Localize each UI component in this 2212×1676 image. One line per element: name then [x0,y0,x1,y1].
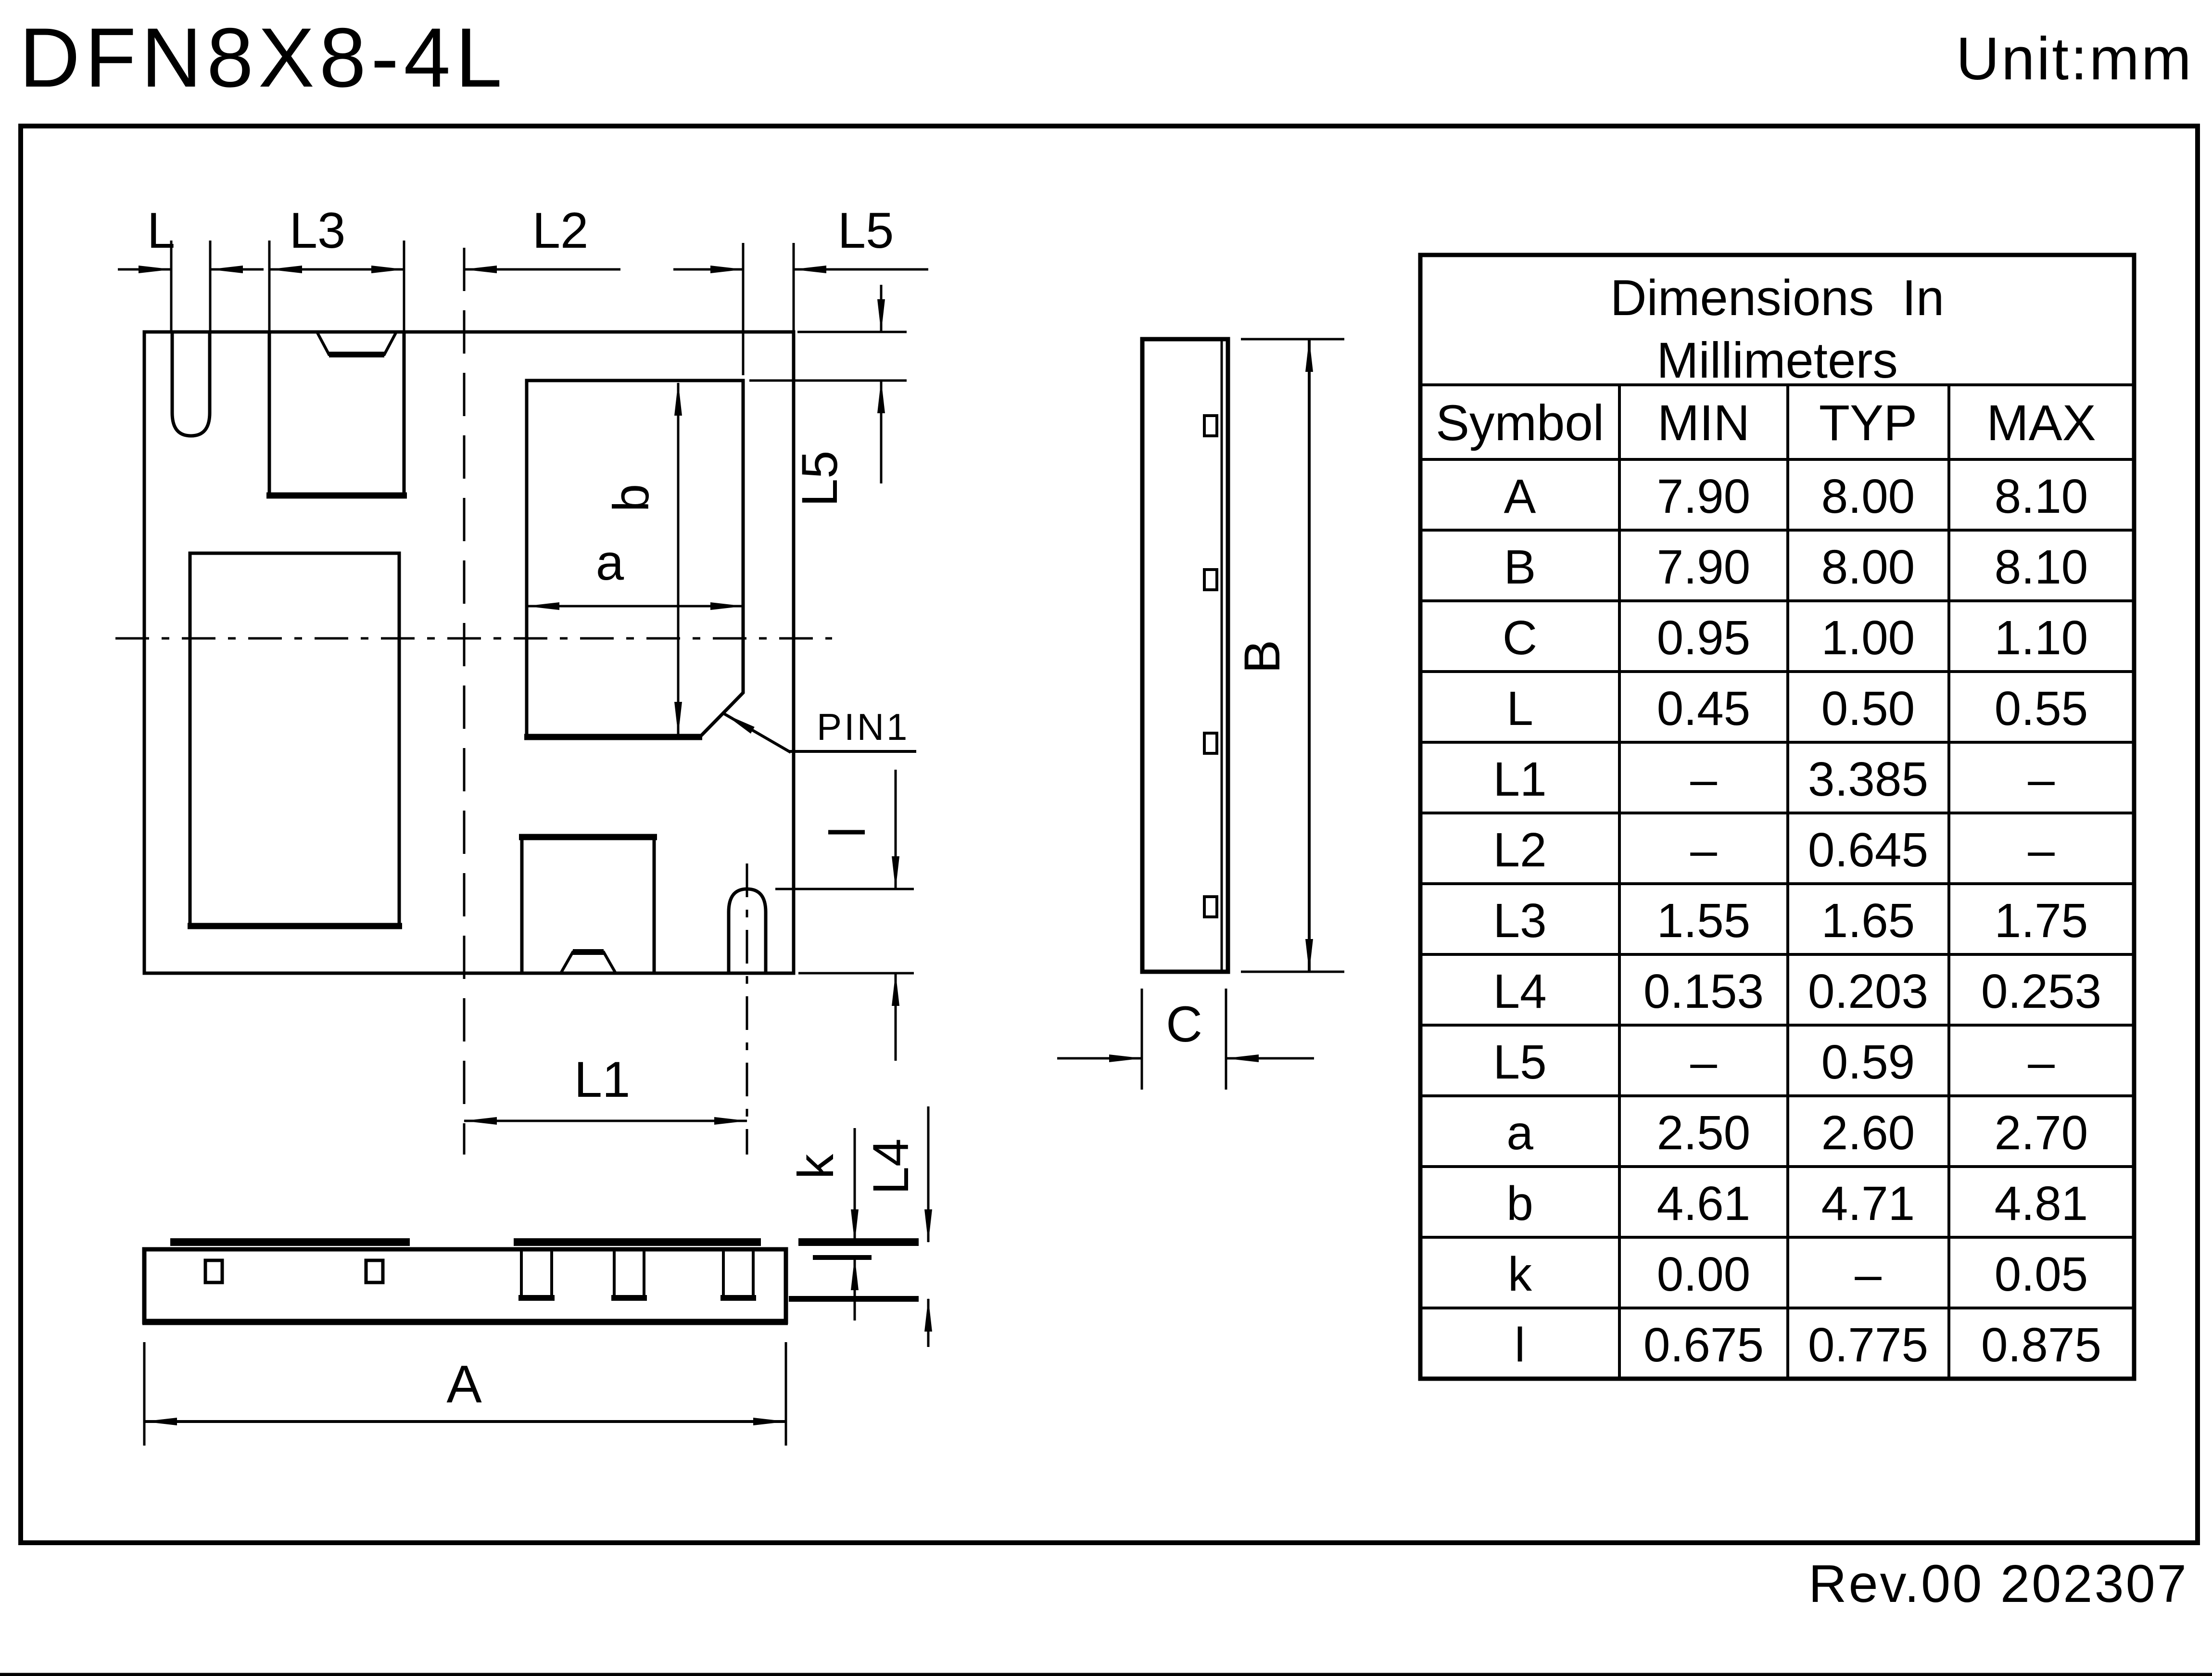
cell-max: 8.10 [1995,470,2088,523]
cell-symbol: L1 [1493,752,1546,806]
tab1-sides [521,1249,552,1298]
unit-label: Unit:mm [1956,25,2193,92]
profile-tabs [518,1249,756,1298]
dim-L3-label: L3 [290,203,346,259]
side-lead-1 [1204,416,1217,436]
cell-typ: 4.71 [1821,1177,1915,1231]
cell-min: 0.45 [1657,682,1751,736]
tab3-sides [723,1249,753,1298]
dim-B-label: B [1234,640,1290,673]
cell-typ: 0.203 [1808,965,1928,1018]
col-header-typ: TYP [1819,395,1917,451]
dim-L5-right-label: L5 [792,451,848,507]
table-row: a 2.50 2.60 2.70 [1506,1106,2088,1160]
notched-lead-top [266,332,407,495]
dim-l-right: l [775,770,914,1061]
cell-max: 2.70 [1995,1106,2088,1160]
cell-min: 0.153 [1643,965,1764,1018]
package-body-outline [144,332,794,973]
table-row: L1 – 3.385 – [1493,752,2055,806]
table-row: A 7.90 8.00 8.10 [1504,470,2088,523]
table-row: L5 – 0.59 – [1493,1035,2055,1089]
dim-k: k [788,1128,855,1320]
table-row: L4 0.153 0.203 0.253 [1493,965,2101,1018]
col-header-max: MAX [1986,395,2096,451]
dim-a-label: a [596,534,624,591]
cell-typ: – [1855,1247,1882,1301]
profile-view: k L4 A [142,1106,928,1446]
cell-symbol: b [1506,1177,1533,1231]
cell-max: 4.81 [1995,1177,2088,1231]
cell-min: 0.675 [1643,1318,1764,1372]
cell-min: – [1690,1035,1717,1089]
dim-A: A [144,1342,786,1446]
col-header-symbol: Symbol [1436,395,1604,451]
cell-max: – [2028,1035,2055,1089]
cell-symbol: A [1504,470,1536,523]
dim-C-label: C [1166,996,1202,1053]
profile-via-2 [366,1260,383,1282]
cell-min: 0.00 [1657,1247,1751,1301]
revision-label: Rev.00 202307 [1808,1554,2188,1613]
cell-min: 0.95 [1657,611,1751,665]
table-row: L 0.45 0.50 0.55 [1506,682,2088,736]
exposed-pad-right [524,381,743,737]
table-row: L3 1.55 1.65 1.75 [1493,894,2088,948]
dim-b-label: b [603,484,659,512]
cell-min: 7.90 [1657,540,1751,594]
dim-L5-right: L5 [749,285,907,507]
dim-L1: L1 [464,1052,747,1121]
table-row: k 0.00 – 0.05 [1508,1247,2088,1301]
side-view: B C [1057,339,1344,1090]
dim-L4-label: L4 [863,1139,919,1195]
dim-L-label: L [147,203,175,259]
cell-symbol: L2 [1493,823,1546,877]
table-row: b 4.61 4.71 4.81 [1506,1177,2088,1231]
profile-body [144,1249,786,1322]
extension-lines-top [171,241,794,375]
cell-typ: 8.00 [1821,470,1915,523]
dim-k-label: k [788,1154,844,1179]
cell-typ: 0.50 [1821,682,1915,736]
cell-max: 0.05 [1995,1247,2088,1301]
lead-notch [317,333,396,355]
cell-typ: 8.00 [1821,540,1915,594]
cell-symbol: k [1508,1247,1532,1301]
cell-symbol: l [1515,1318,1525,1372]
top-view: PIN1 L L3 L2 L5 L5 [115,203,928,1155]
pin1-callout: PIN1 [724,706,916,752]
table-title-line2: Millimeters [1656,332,1898,389]
cell-max: 1.75 [1995,894,2088,948]
cell-typ: 3.385 [1808,752,1928,806]
side-lead-3 [1204,733,1217,753]
dim-L5-top-label: L5 [838,203,894,259]
dim-L4: L4 [863,1106,928,1347]
drawing-sheet: DFN8X8-4L Unit:mm Rev.00 202307 [0,0,2212,1676]
cell-max: 8.10 [1995,540,2088,594]
cell-min: 7.90 [1657,470,1751,523]
dim-C: C [1057,989,1314,1090]
cell-symbol: L [1506,682,1533,736]
cell-min: 4.61 [1657,1177,1751,1231]
cell-max: – [2028,823,2055,877]
side-lead-2 [1204,570,1217,590]
cell-max: 0.875 [1981,1318,2101,1372]
table-row: C 0.95 1.00 1.10 [1503,611,2088,665]
cell-min: 2.50 [1657,1106,1751,1160]
dim-A-label: A [446,1355,483,1414]
page-title: DFN8X8-4L [19,11,507,105]
tab2-sides [614,1249,644,1298]
package-outline-drawing: DFN8X8-4L Unit:mm Rev.00 202307 [0,0,2212,1676]
cell-typ: 0.59 [1821,1035,1915,1089]
cell-min: – [1690,752,1717,806]
dim-L2-label: L2 [532,203,589,259]
side-lead-4 [1204,897,1217,917]
pad-left-outline [190,553,399,926]
pad-right-outline [527,381,743,737]
cell-symbol: C [1503,611,1537,665]
cell-max: 0.253 [1981,965,2101,1018]
cell-symbol: a [1506,1106,1533,1160]
notched-lead-bottom [519,837,657,972]
table-title-line1: Dimensions In [1610,270,1944,326]
pin1-leader-arrow [724,714,791,752]
dim-L1-label: L1 [574,1052,631,1108]
cell-max: 1.10 [1995,611,2088,665]
table-row: B 7.90 8.00 8.10 [1504,540,2088,594]
cell-typ: 2.60 [1821,1106,1915,1160]
lead2-notch [561,952,615,972]
profile-via-1 [205,1260,222,1282]
cell-symbol: L3 [1493,894,1546,948]
cell-min: 1.55 [1657,894,1751,948]
cell-typ: 1.00 [1821,611,1915,665]
cell-min: – [1690,823,1717,877]
cell-max: – [2028,752,2055,806]
cell-symbol: L5 [1493,1035,1546,1089]
cell-symbol: B [1504,540,1536,594]
cell-typ: 1.65 [1821,894,1915,948]
dim-row-top: L L3 L2 L5 [118,203,928,375]
exposed-pad-left [188,553,402,926]
oval-lead-top-left [172,332,210,436]
dim-l-label: l [820,826,876,838]
col-header-min: MIN [1657,395,1750,451]
cell-typ: 0.645 [1808,823,1928,877]
dimensions-table: Dimensions In Millimeters Symbol MIN TYP… [1420,255,2134,1379]
dim-a: a [527,534,743,606]
table-row: l 0.675 0.775 0.875 [1515,1318,2101,1372]
cell-typ: 0.775 [1808,1318,1928,1372]
cell-max: 0.55 [1995,682,2088,736]
cell-symbol: L4 [1493,965,1546,1018]
side-body-outline [1142,339,1228,972]
dim-B: B [1234,339,1344,972]
pin1-label: PIN1 [817,706,910,748]
table-row: L2 – 0.645 – [1493,823,2055,877]
